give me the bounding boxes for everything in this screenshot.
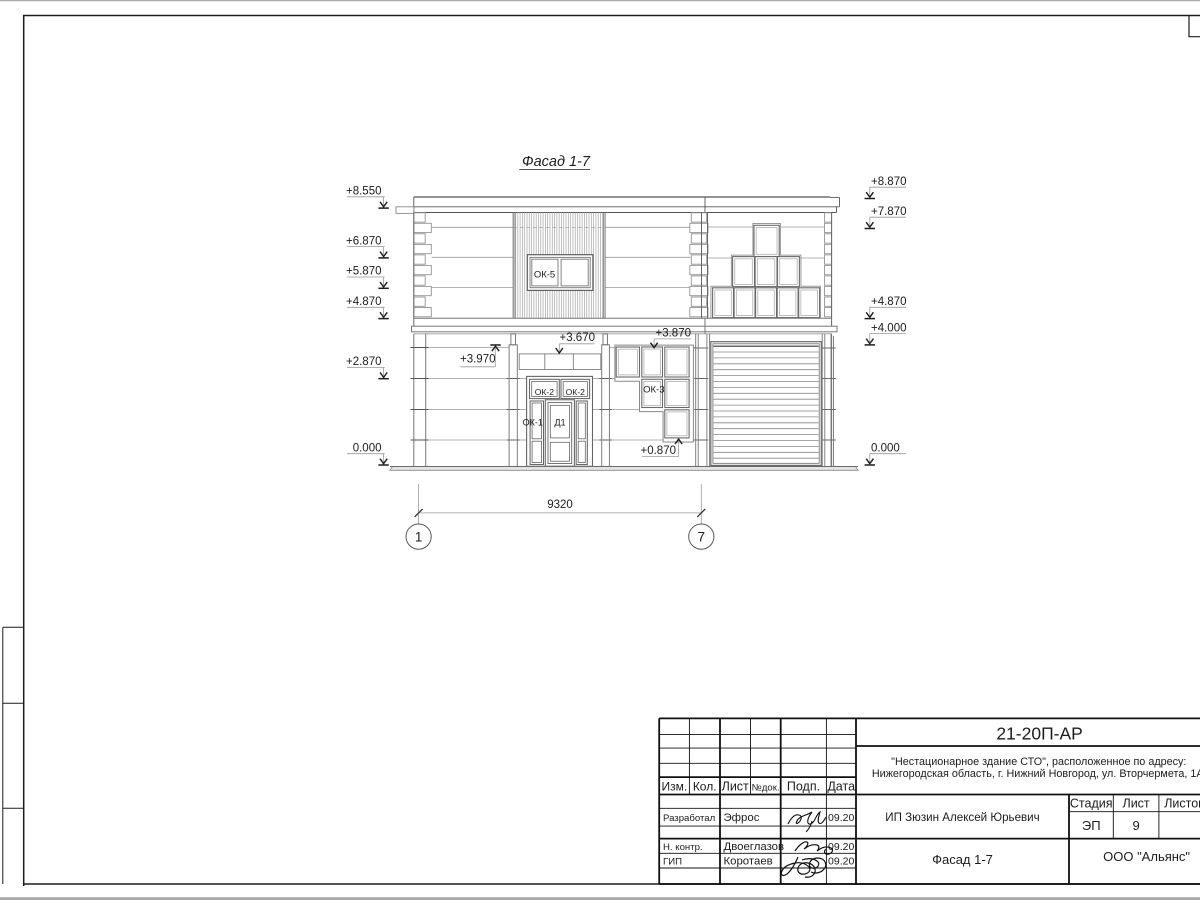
svg-text:Лист: Лист xyxy=(722,780,749,794)
svg-text:Подп.: Подп. xyxy=(787,780,820,794)
svg-text:0.000: 0.000 xyxy=(353,442,382,454)
svg-text:Изм.: Изм. xyxy=(661,780,687,794)
svg-text:+3.970: +3.970 xyxy=(460,354,496,366)
svg-text:ОК-2: ОК-2 xyxy=(535,387,555,397)
svg-text:ЭП: ЭП xyxy=(1082,818,1101,833)
svg-text:+0.870: +0.870 xyxy=(641,445,677,457)
svg-text:9320: 9320 xyxy=(547,499,573,511)
svg-text:+4.870: +4.870 xyxy=(346,296,382,308)
svg-text:Двоеглазов: Двоеглазов xyxy=(724,841,785,853)
svg-text:Нижегородская область, г. Нижн: Нижегородская область, г. Нижний Новгоро… xyxy=(872,768,1200,780)
svg-text:+4.870: +4.870 xyxy=(871,296,907,308)
svg-text:7: 7 xyxy=(698,529,706,544)
svg-text:0.000: 0.000 xyxy=(871,442,900,454)
svg-text:Стадия: Стадия xyxy=(1070,796,1113,810)
svg-text:ОК-2: ОК-2 xyxy=(566,387,586,397)
svg-text:+3.670: +3.670 xyxy=(560,332,596,344)
svg-text:+8.870: +8.870 xyxy=(871,176,907,188)
svg-text:Д1: Д1 xyxy=(554,417,565,427)
svg-text:ОК-5: ОК-5 xyxy=(534,270,555,281)
svg-text:+2.870: +2.870 xyxy=(346,356,382,368)
svg-text:+8.550: +8.550 xyxy=(346,186,382,198)
svg-text:+5.870: +5.870 xyxy=(346,266,382,278)
svg-text:Фасад 1-7: Фасад 1-7 xyxy=(522,154,591,170)
svg-text:+4.000: +4.000 xyxy=(871,322,907,334)
svg-text:9: 9 xyxy=(1132,818,1139,833)
svg-text:+3.870: +3.870 xyxy=(656,327,692,339)
svg-text:09.20: 09.20 xyxy=(828,812,854,824)
svg-text:1: 1 xyxy=(415,529,423,544)
svg-text:Коротаев: Коротаев xyxy=(724,856,773,868)
svg-text:Листов: Листов xyxy=(1164,796,1200,810)
svg-text:№док.: №док. xyxy=(752,783,780,794)
svg-text:Фасад 1-7: Фасад 1-7 xyxy=(932,852,993,867)
svg-text:Дата: Дата xyxy=(827,780,855,794)
svg-text:ИП Зюзин Алексей Юрьевич: ИП Зюзин Алексей Юрьевич xyxy=(885,811,1039,824)
svg-text:Н. контр.: Н. контр. xyxy=(663,842,703,853)
svg-text:"Нестационарное здание СТО", р: "Нестационарное здание СТО", расположенн… xyxy=(891,756,1186,768)
svg-text:09.20: 09.20 xyxy=(828,856,854,868)
svg-text:ООО "Альянс": ООО "Альянс" xyxy=(1103,849,1190,864)
svg-text:ОК-3: ОК-3 xyxy=(643,384,664,395)
svg-text:ОК-1: ОК-1 xyxy=(523,417,543,427)
svg-text:+6.870: +6.870 xyxy=(346,235,382,247)
svg-text:+7.870: +7.870 xyxy=(871,206,907,218)
svg-text:Лист: Лист xyxy=(1123,796,1150,810)
svg-text:Разработал: Разработал xyxy=(663,813,715,824)
svg-text:Кол.: Кол. xyxy=(693,780,717,794)
svg-text:Эфрос: Эфрос xyxy=(724,812,760,824)
svg-text:ГИП: ГИП xyxy=(663,857,682,868)
svg-text:21-20П-АР: 21-20П-АР xyxy=(996,724,1083,744)
